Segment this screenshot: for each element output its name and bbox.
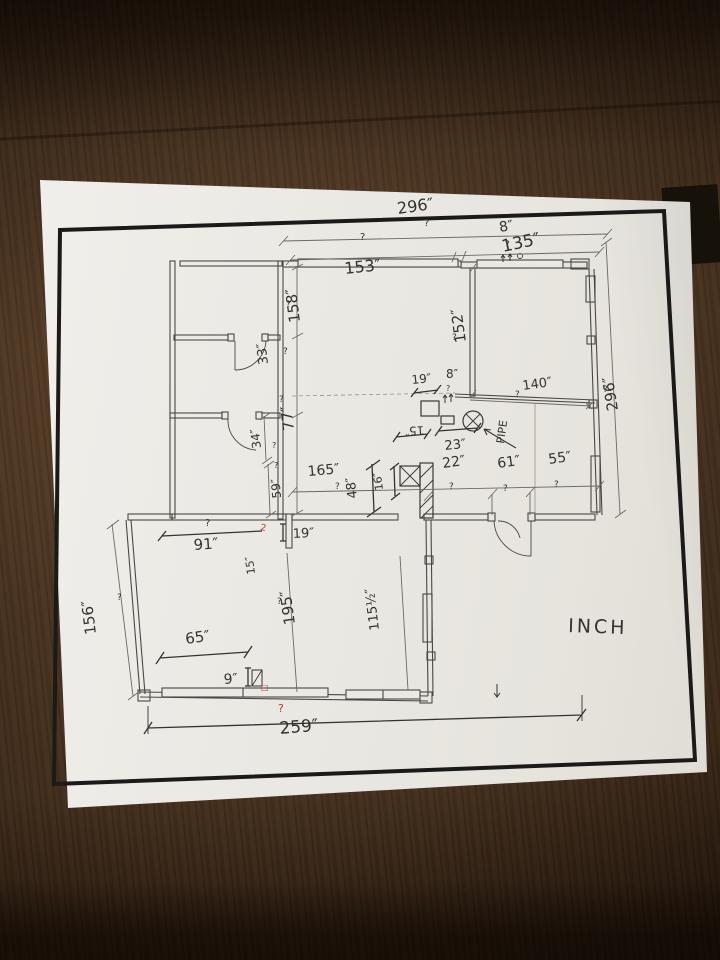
- dimension-label: 296″: [396, 194, 435, 218]
- dimension-label: 33″: [254, 342, 272, 365]
- dimension-label: ?: [286, 300, 291, 310]
- dimension-label: ?: [446, 384, 450, 393]
- dimension-label: 91″: [193, 534, 219, 554]
- dimension-label: ?: [335, 482, 340, 492]
- dimension-label: ?: [272, 441, 276, 450]
- dimension-label: 19″: [292, 526, 314, 542]
- dimension-label: PIPE: [494, 419, 510, 444]
- dimension-label: 156″: [78, 599, 100, 636]
- dimension-label: ?: [424, 218, 429, 229]
- dimension-label: INCH: [568, 615, 628, 639]
- dimension-label: ?: [515, 390, 520, 400]
- dimension-label: 195″: [276, 589, 299, 626]
- dimension-label: 16″: [371, 472, 386, 492]
- dimension-label: ?: [603, 385, 608, 395]
- dimension-label: 2: [259, 523, 266, 534]
- dimension-label: ?: [205, 518, 210, 529]
- dimension-label: 140″: [521, 375, 553, 394]
- dimension-label: ?: [279, 395, 284, 405]
- dimension-label: 8″: [446, 367, 459, 381]
- dimension-label: 22″: [441, 453, 466, 472]
- dimension-label: 15″: [243, 556, 258, 576]
- dimension-label: 23″: [444, 437, 467, 454]
- dimension-label: ?: [554, 480, 559, 490]
- floor-plan-drawing: 296″?8″??135″153″158″?33″?77″?152″?296″?…: [0, 0, 720, 960]
- dimension-label: 115½″: [363, 587, 383, 631]
- dimension-label: 9″: [223, 671, 238, 688]
- dimension-label: ?: [452, 333, 457, 343]
- photo-of-floor-plan: { "scene": { "description": "hand-annota…: [0, 0, 720, 960]
- dimension-label: ?: [277, 597, 282, 607]
- hand-drawn-marks: [144, 254, 586, 734]
- dimension-label: ?: [503, 484, 508, 494]
- dimension-label: 152″: [447, 307, 470, 344]
- dimension-label: 153″: [343, 255, 381, 278]
- dimension-label: ?: [117, 593, 122, 603]
- dimension-label: 65″: [184, 627, 211, 648]
- dimension-label: 19″: [411, 371, 433, 387]
- dimension-label: ?: [283, 347, 288, 357]
- dimension-label: 61″: [496, 453, 521, 472]
- dimension-label: 15″: [404, 423, 425, 438]
- dimension-label: 165″: [307, 461, 340, 480]
- dimension-label: ?: [449, 482, 454, 492]
- dimension-label: □: [261, 683, 269, 692]
- dimension-label: ?: [278, 702, 284, 715]
- dimension-label: 8″: [498, 218, 515, 236]
- dimension-label: ?: [274, 461, 278, 470]
- dimension-label: 77″: [277, 405, 298, 432]
- dimension-label: 48″: [343, 476, 361, 499]
- dimension-label: 59″: [268, 478, 284, 499]
- dimension-label: 34″: [248, 428, 264, 450]
- window-symbols: [162, 254, 563, 700]
- dimension-label: 55″: [547, 449, 572, 468]
- dimension-label: ?: [360, 232, 365, 243]
- dimension-label: 259″: [279, 716, 319, 739]
